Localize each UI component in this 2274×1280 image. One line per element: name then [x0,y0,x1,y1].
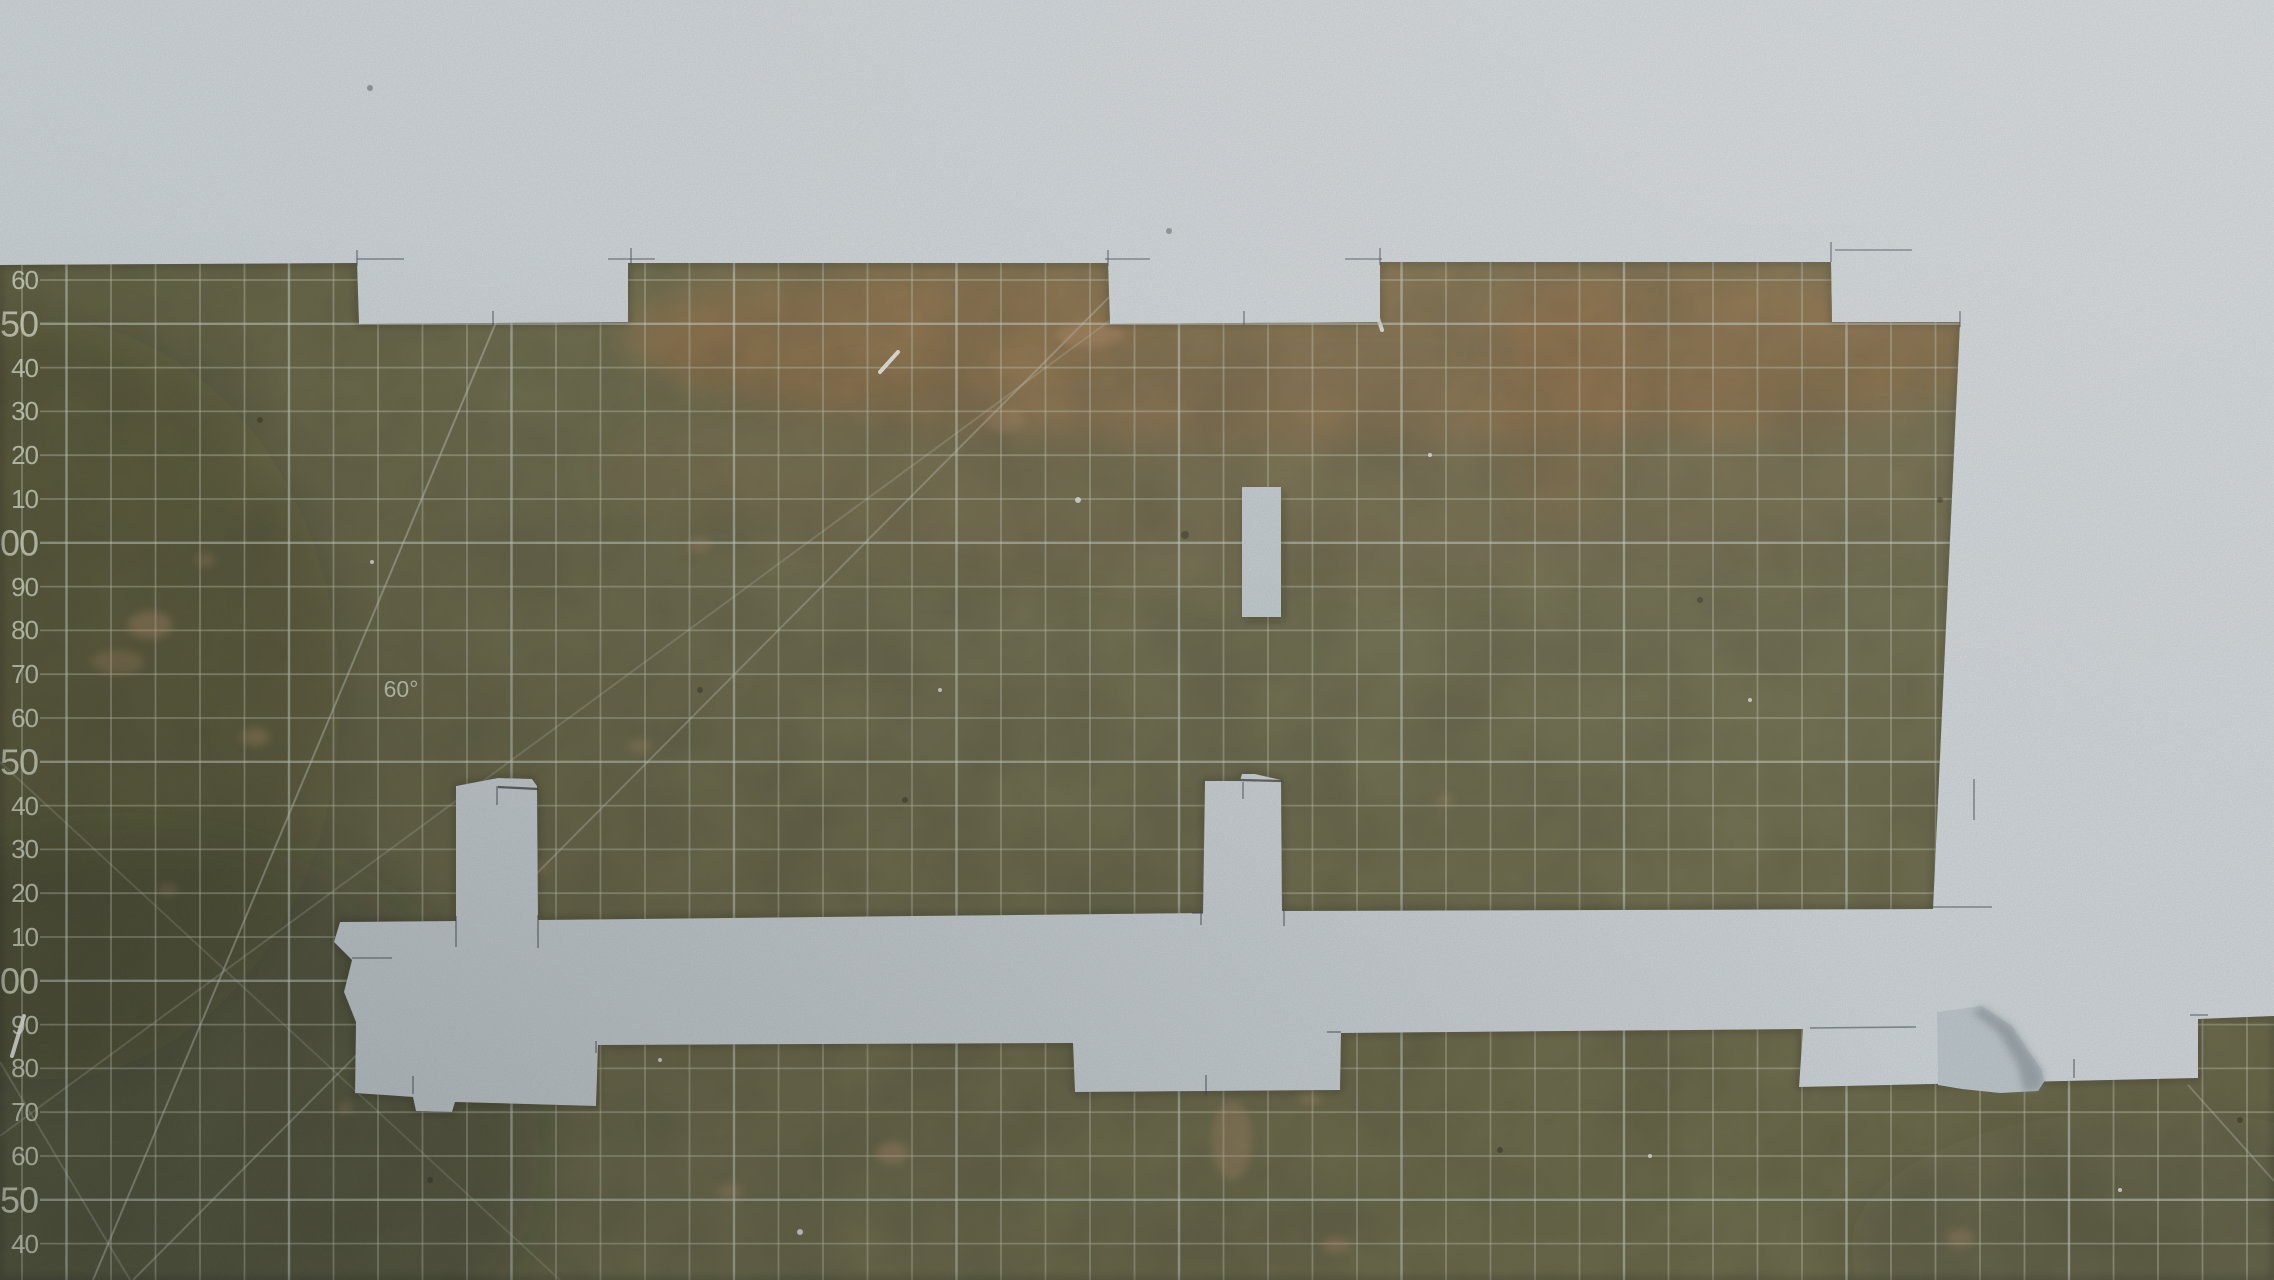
photo-papercraft-on-cutting-mat: 6050403020100090807060504030201000908070… [0,0,2274,1280]
photo-lighting-grain [0,0,2274,1280]
scene-svg: 6050403020100090807060504030201000908070… [0,0,2274,1280]
